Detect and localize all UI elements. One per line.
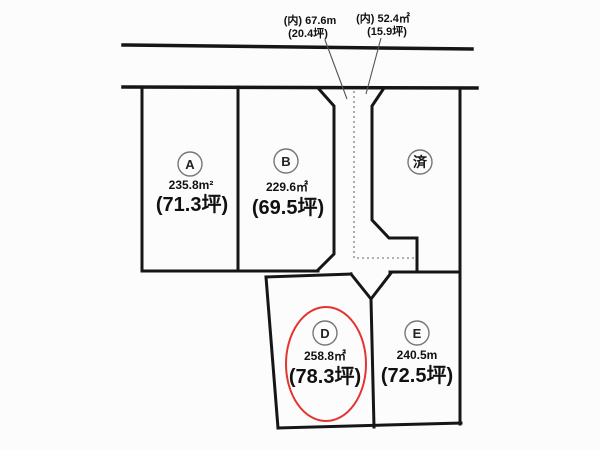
- plot-d-top-boundary: [266, 274, 351, 277]
- plot-b-area-tsubo: (69.5坪): [252, 196, 324, 219]
- driveway-mouth-boundary: [351, 273, 391, 299]
- driveway-right-boundary: [372, 88, 417, 272]
- plot-a-area-m2: 235.8m²: [169, 178, 214, 192]
- plot-a-label-group: A 235.8m² (71.3坪): [156, 152, 228, 216]
- annotation-left-tsubo: (20.4坪): [288, 27, 328, 40]
- plot-d-letter: D: [320, 326, 329, 341]
- plot-b-area-m2: 229.6㎡: [266, 179, 308, 194]
- plot-d-area-tsubo: (78.3坪): [289, 365, 361, 388]
- road-outer-line: [123, 45, 472, 49]
- plot-d-label-group: D 258.8㎡ (78.3坪): [286, 307, 366, 421]
- plot-d-left-boundary: [266, 277, 278, 428]
- plot-a-letter: A: [185, 157, 195, 172]
- plot-b-letter: B: [281, 154, 290, 169]
- annotation-left-area: (内) 67.6m: [284, 13, 337, 27]
- plot-e-label-group: E 240.5m (72.5坪): [381, 321, 453, 387]
- plot-sold-label-group: 済: [408, 150, 432, 174]
- annotation-right-tsubo: (15.9坪): [367, 25, 407, 38]
- plot-d-area-m2: 258.8㎡: [304, 348, 346, 363]
- road-inner-line: [123, 87, 477, 88]
- plot-e-area-m2: 240.5m: [397, 348, 438, 362]
- plot-sold-letter: 済: [413, 154, 428, 170]
- plot-a-area-tsubo: (71.3坪): [156, 193, 228, 216]
- land-plot-diagram: (内) 67.6m (20.4坪) (内) 52.4㎡ (15.9坪) A 23…: [0, 0, 600, 450]
- plot-map-canvas: (内) 67.6m (20.4坪) (内) 52.4㎡ (15.9坪) A 23…: [0, 0, 600, 450]
- annotation-right-area: (内) 52.4㎡: [356, 11, 410, 25]
- plot-d-highlight-ellipse: [286, 307, 366, 421]
- plot-d-e-divider: [371, 299, 374, 427]
- plot-e-area-tsubo: (72.5坪): [381, 364, 453, 387]
- bottom-outer-boundary: [278, 423, 461, 428]
- plot-e-letter: E: [413, 326, 422, 341]
- plot-b-label-group: B 229.6㎡ (69.5坪): [252, 149, 324, 219]
- driveway-left-boundary: [318, 88, 334, 270]
